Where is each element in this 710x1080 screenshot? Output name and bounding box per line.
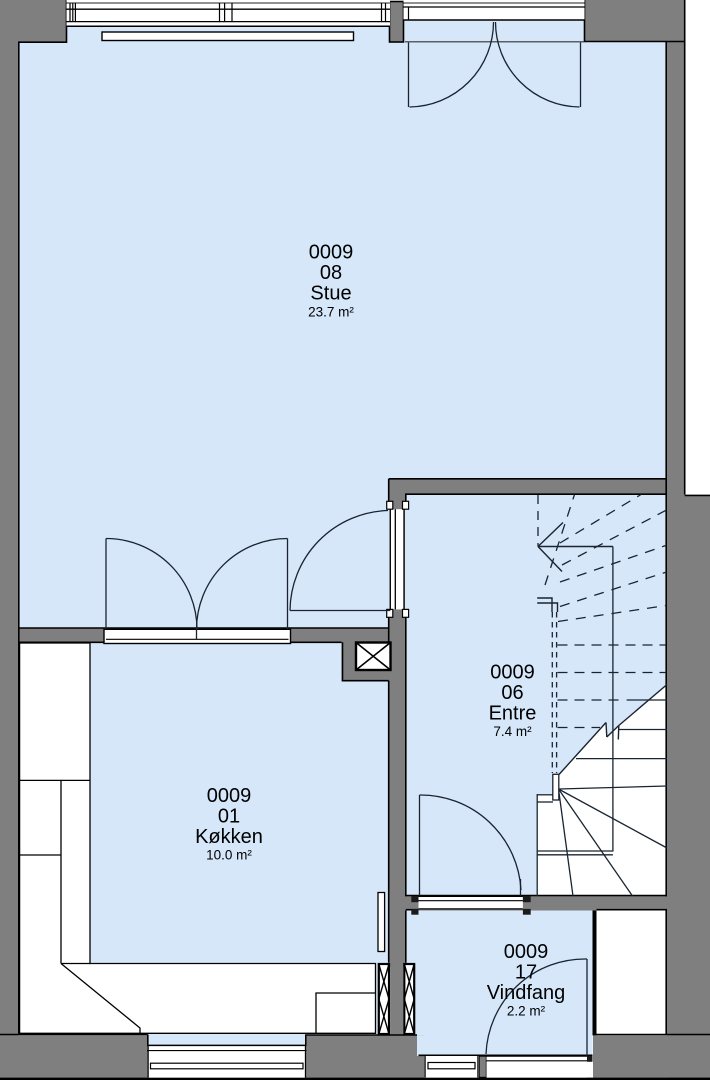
svg-text:01: 01 [218, 806, 240, 828]
svg-text:7.4 m²: 7.4 m² [493, 724, 532, 739]
svg-text:Entre: Entre [489, 703, 537, 725]
svg-text:0009: 0009 [490, 662, 535, 684]
svg-text:0009: 0009 [504, 941, 549, 963]
svg-text:Køkken: Køkken [195, 826, 263, 848]
svg-text:Vindfang: Vindfang [487, 982, 566, 1004]
svg-text:06: 06 [501, 682, 523, 704]
svg-text:10.0 m²: 10.0 m² [206, 848, 252, 863]
svg-text:0009: 0009 [309, 242, 354, 264]
svg-text:2.2 m²: 2.2 m² [507, 1004, 546, 1019]
svg-text:0009: 0009 [207, 785, 252, 807]
svg-text:23.7 m²: 23.7 m² [308, 305, 354, 320]
svg-text:Stue: Stue [310, 283, 351, 305]
svg-text:08: 08 [320, 262, 342, 284]
svg-text:17: 17 [515, 962, 537, 984]
